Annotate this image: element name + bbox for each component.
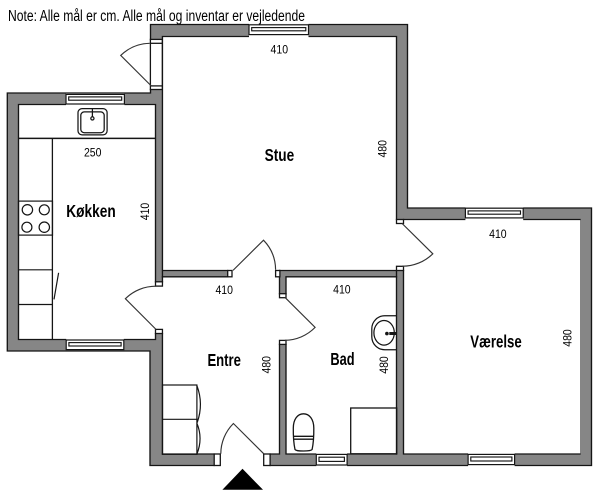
svg-text:Værelse: Værelse [470,332,522,352]
svg-text:410: 410 [489,227,507,241]
svg-text:480: 480 [377,356,391,374]
svg-text:Bad: Bad [330,349,354,369]
svg-text:Køkken: Køkken [66,201,115,221]
svg-text:480: 480 [259,356,273,374]
svg-text:480: 480 [561,329,575,347]
svg-text:Note: Alle mål er cm. Alle mål: Note: Alle mål er cm. Alle mål og invent… [8,8,305,25]
svg-text:Stue: Stue [265,145,295,165]
svg-text:410: 410 [271,43,289,57]
svg-text:410: 410 [215,283,233,297]
svg-text:250: 250 [84,145,102,159]
svg-text:410: 410 [333,283,351,297]
svg-text:410: 410 [138,202,152,220]
svg-text:Entre: Entre [207,350,241,370]
svg-text:480: 480 [376,140,390,158]
